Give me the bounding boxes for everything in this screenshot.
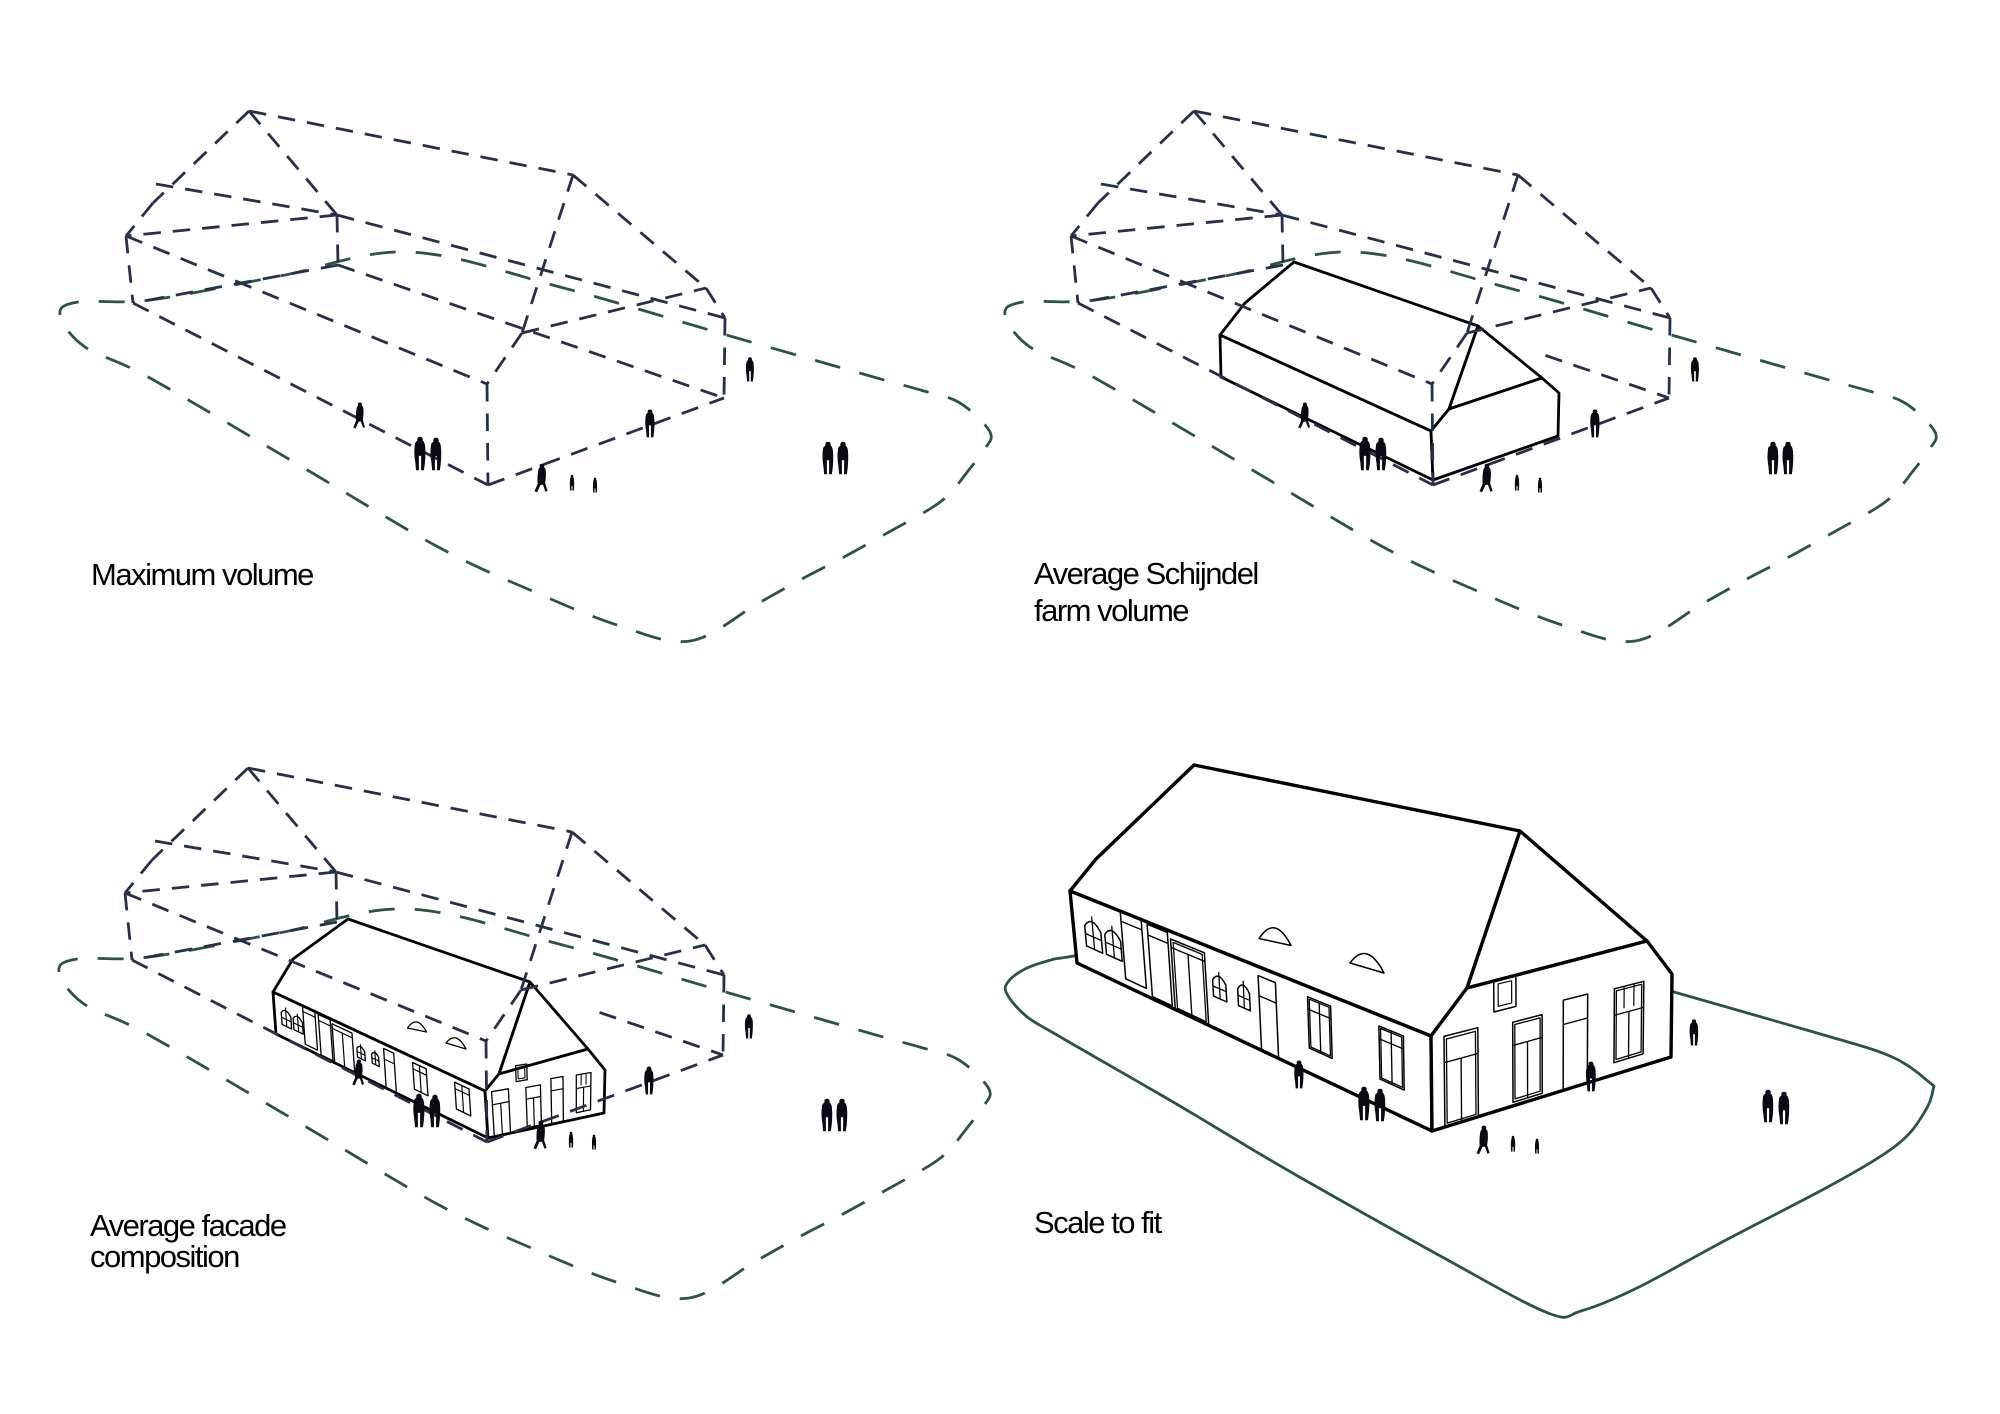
svg-text:Scale to fit: Scale to fit [1034,1205,1163,1240]
svg-text:Average Schijndel: Average Schijndel [1034,556,1258,591]
svg-text:farm volume: farm volume [1034,593,1188,628]
svg-text:Average facade: Average facade [90,1208,286,1243]
svg-text:composition: composition [90,1239,239,1274]
svg-text:Maximum volume: Maximum volume [91,557,313,592]
